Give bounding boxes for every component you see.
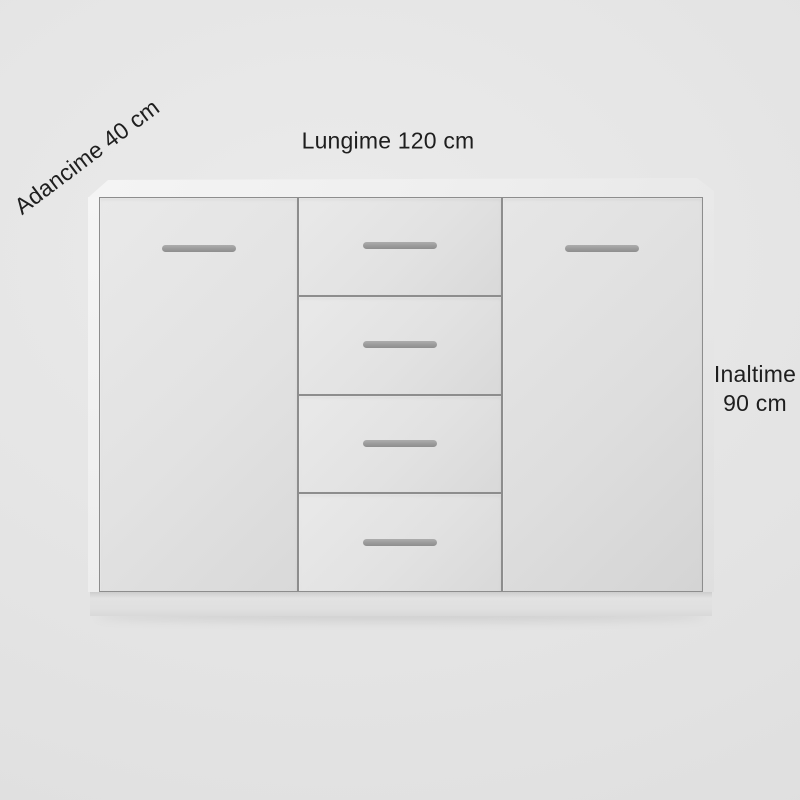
drawer-2-handle (363, 341, 437, 348)
sideboard-left-side-panel (88, 197, 99, 592)
drawer-column (299, 198, 500, 591)
height-dimension-line2: 90 cm (714, 389, 796, 418)
right-door (503, 198, 702, 591)
drawer-1-handle (363, 242, 437, 249)
left-door (100, 198, 297, 591)
length-dimension-label: Lungime 120 cm (302, 128, 475, 155)
drawer-4-handle (363, 539, 437, 546)
sideboard-front (99, 197, 703, 592)
left-door-handle (162, 245, 236, 252)
sideboard-base (90, 592, 712, 616)
sideboard-top-panel (88, 178, 714, 198)
drawer-3 (299, 396, 500, 493)
drawer-4 (299, 494, 500, 591)
drawer-3-handle (363, 440, 437, 447)
drawer-1 (299, 198, 500, 295)
product-image: Lungime 120 cm Adancime 40 cm Inaltime 9… (0, 0, 800, 800)
height-dimension-line1: Inaltime (714, 360, 796, 389)
height-dimension-label: Inaltime 90 cm (714, 360, 796, 418)
drawer-2 (299, 297, 500, 394)
sideboard-right-side-panel (703, 197, 714, 592)
right-door-handle (565, 245, 639, 252)
sideboard (88, 178, 714, 618)
